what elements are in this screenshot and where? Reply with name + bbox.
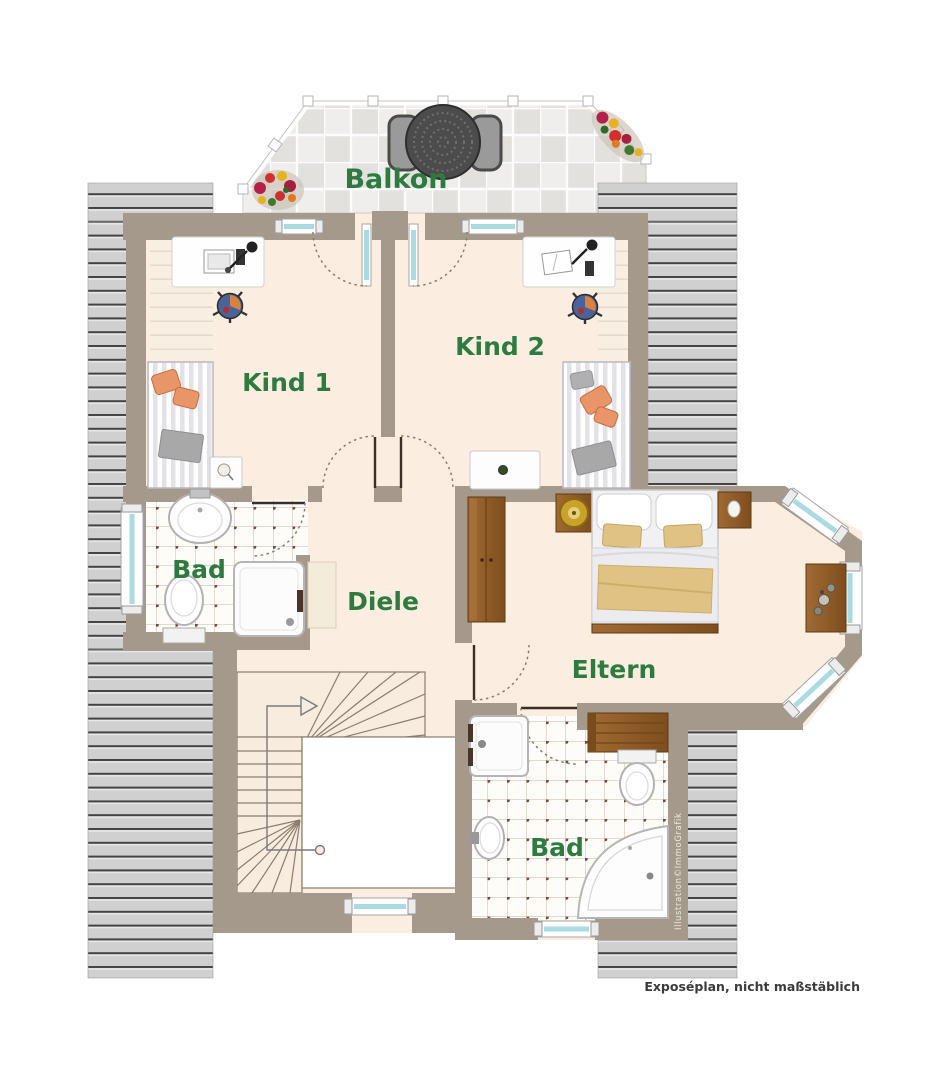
drain-icon xyxy=(286,618,294,626)
scale-disclaimer: Exposéplan, nicht maßstäblich xyxy=(644,979,860,994)
desk-lamp-icon xyxy=(247,242,258,253)
desk-child1 xyxy=(172,237,264,287)
window-stair-landing xyxy=(344,898,416,915)
stairwell-void xyxy=(302,737,460,888)
phone-icon xyxy=(585,261,594,276)
bench-sideboard xyxy=(588,713,668,752)
toilet-lower xyxy=(618,750,656,805)
floor-plan-page: Balkon Kind 1 Kind 2 Bad Diele Eltern Ba… xyxy=(0,0,949,1080)
tub-faucet-icon xyxy=(647,873,654,880)
dresser-bay-window xyxy=(806,564,846,632)
double-bed-parents xyxy=(592,490,718,633)
window-balcony-left xyxy=(275,219,323,234)
drain-icon xyxy=(478,740,486,748)
nightstand-parents-left xyxy=(556,494,592,532)
shower-lower xyxy=(468,716,528,776)
window-balcony-right xyxy=(462,219,524,234)
bed-child1 xyxy=(148,362,213,488)
nightstand-child1 xyxy=(210,457,242,488)
window-bath-upper xyxy=(121,504,143,614)
dresser-child2 xyxy=(470,451,540,489)
nightstand-parents-right xyxy=(718,492,751,528)
room-label-parents: Eltern xyxy=(572,655,657,684)
room-label-balcony: Balkon xyxy=(344,164,447,195)
toilet-upper xyxy=(163,575,205,643)
window-bath-lower xyxy=(534,921,599,937)
wardrobe-parents xyxy=(468,497,505,622)
shower-upper xyxy=(234,562,304,636)
illustrator-watermark: Illustration©ImmoGrafik xyxy=(674,813,684,931)
room-label-bath-lower: Bad xyxy=(530,833,584,862)
floor-plan: Balkon Kind 1 Kind 2 Bad Diele Eltern Ba… xyxy=(0,0,949,1080)
room-label-bath-upper: Bad xyxy=(172,555,226,584)
hall-shelf xyxy=(308,562,336,628)
roof-right-mid xyxy=(648,222,737,488)
decor-icon xyxy=(728,501,740,517)
roof-left-bottom xyxy=(88,650,213,978)
roof-right-lower xyxy=(687,730,737,940)
desk-lamp-icon xyxy=(587,240,598,251)
room-label-hall: Diele xyxy=(347,587,419,616)
desk-child2 xyxy=(523,237,615,287)
flower-box-left xyxy=(252,170,304,210)
room-label-child1: Kind 1 xyxy=(242,368,332,397)
roof-bottom-right xyxy=(598,940,737,978)
room-label-child2: Kind 2 xyxy=(455,332,545,361)
bed-child2 xyxy=(563,362,630,488)
balcony xyxy=(238,96,653,213)
